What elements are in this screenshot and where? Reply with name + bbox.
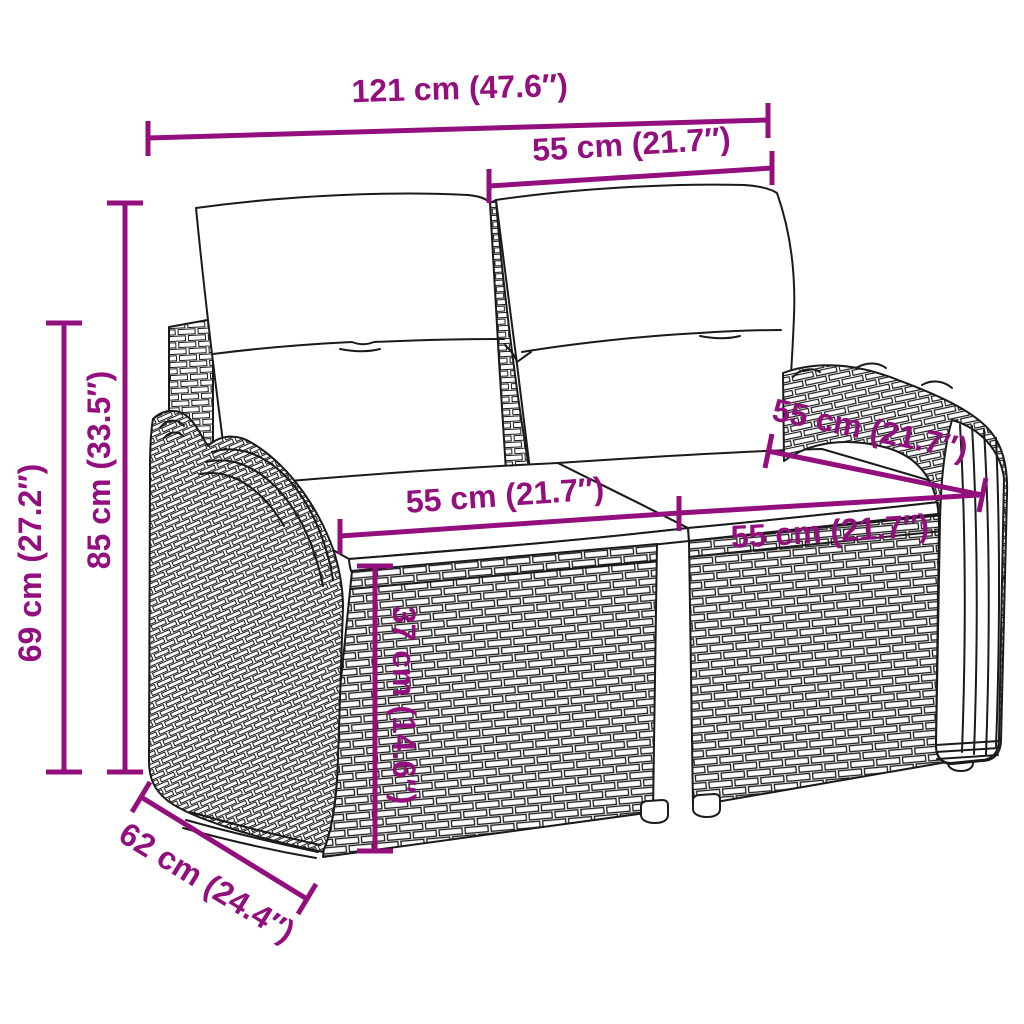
diagram-canvas: 121 cm (47.6″) 55 cm (21.7″) 85 cm (33.5… [0, 0, 1024, 1024]
dim-armrest-height-label: 69 cm (27.2″) [12, 464, 48, 663]
foot-center-left [641, 800, 668, 823]
dim-seat-height-label: 37 cm (14.6″) [386, 606, 422, 805]
foot-center-right [693, 794, 720, 817]
dim-armrest-height: 69 cm (27.2″) [12, 323, 82, 772]
armrest-right-band [936, 420, 1004, 763]
dim-total-height-label: 85 cm (33.5″) [81, 371, 117, 570]
dim-total-height: 85 cm (33.5″) [81, 203, 143, 772]
dim-overall-width-label: 121 cm (47.6″) [351, 67, 568, 109]
dimension-diagram: 121 cm (47.6″) 55 cm (21.7″) 85 cm (33.5… [0, 0, 1024, 1024]
dimension-line [46, 323, 82, 772]
